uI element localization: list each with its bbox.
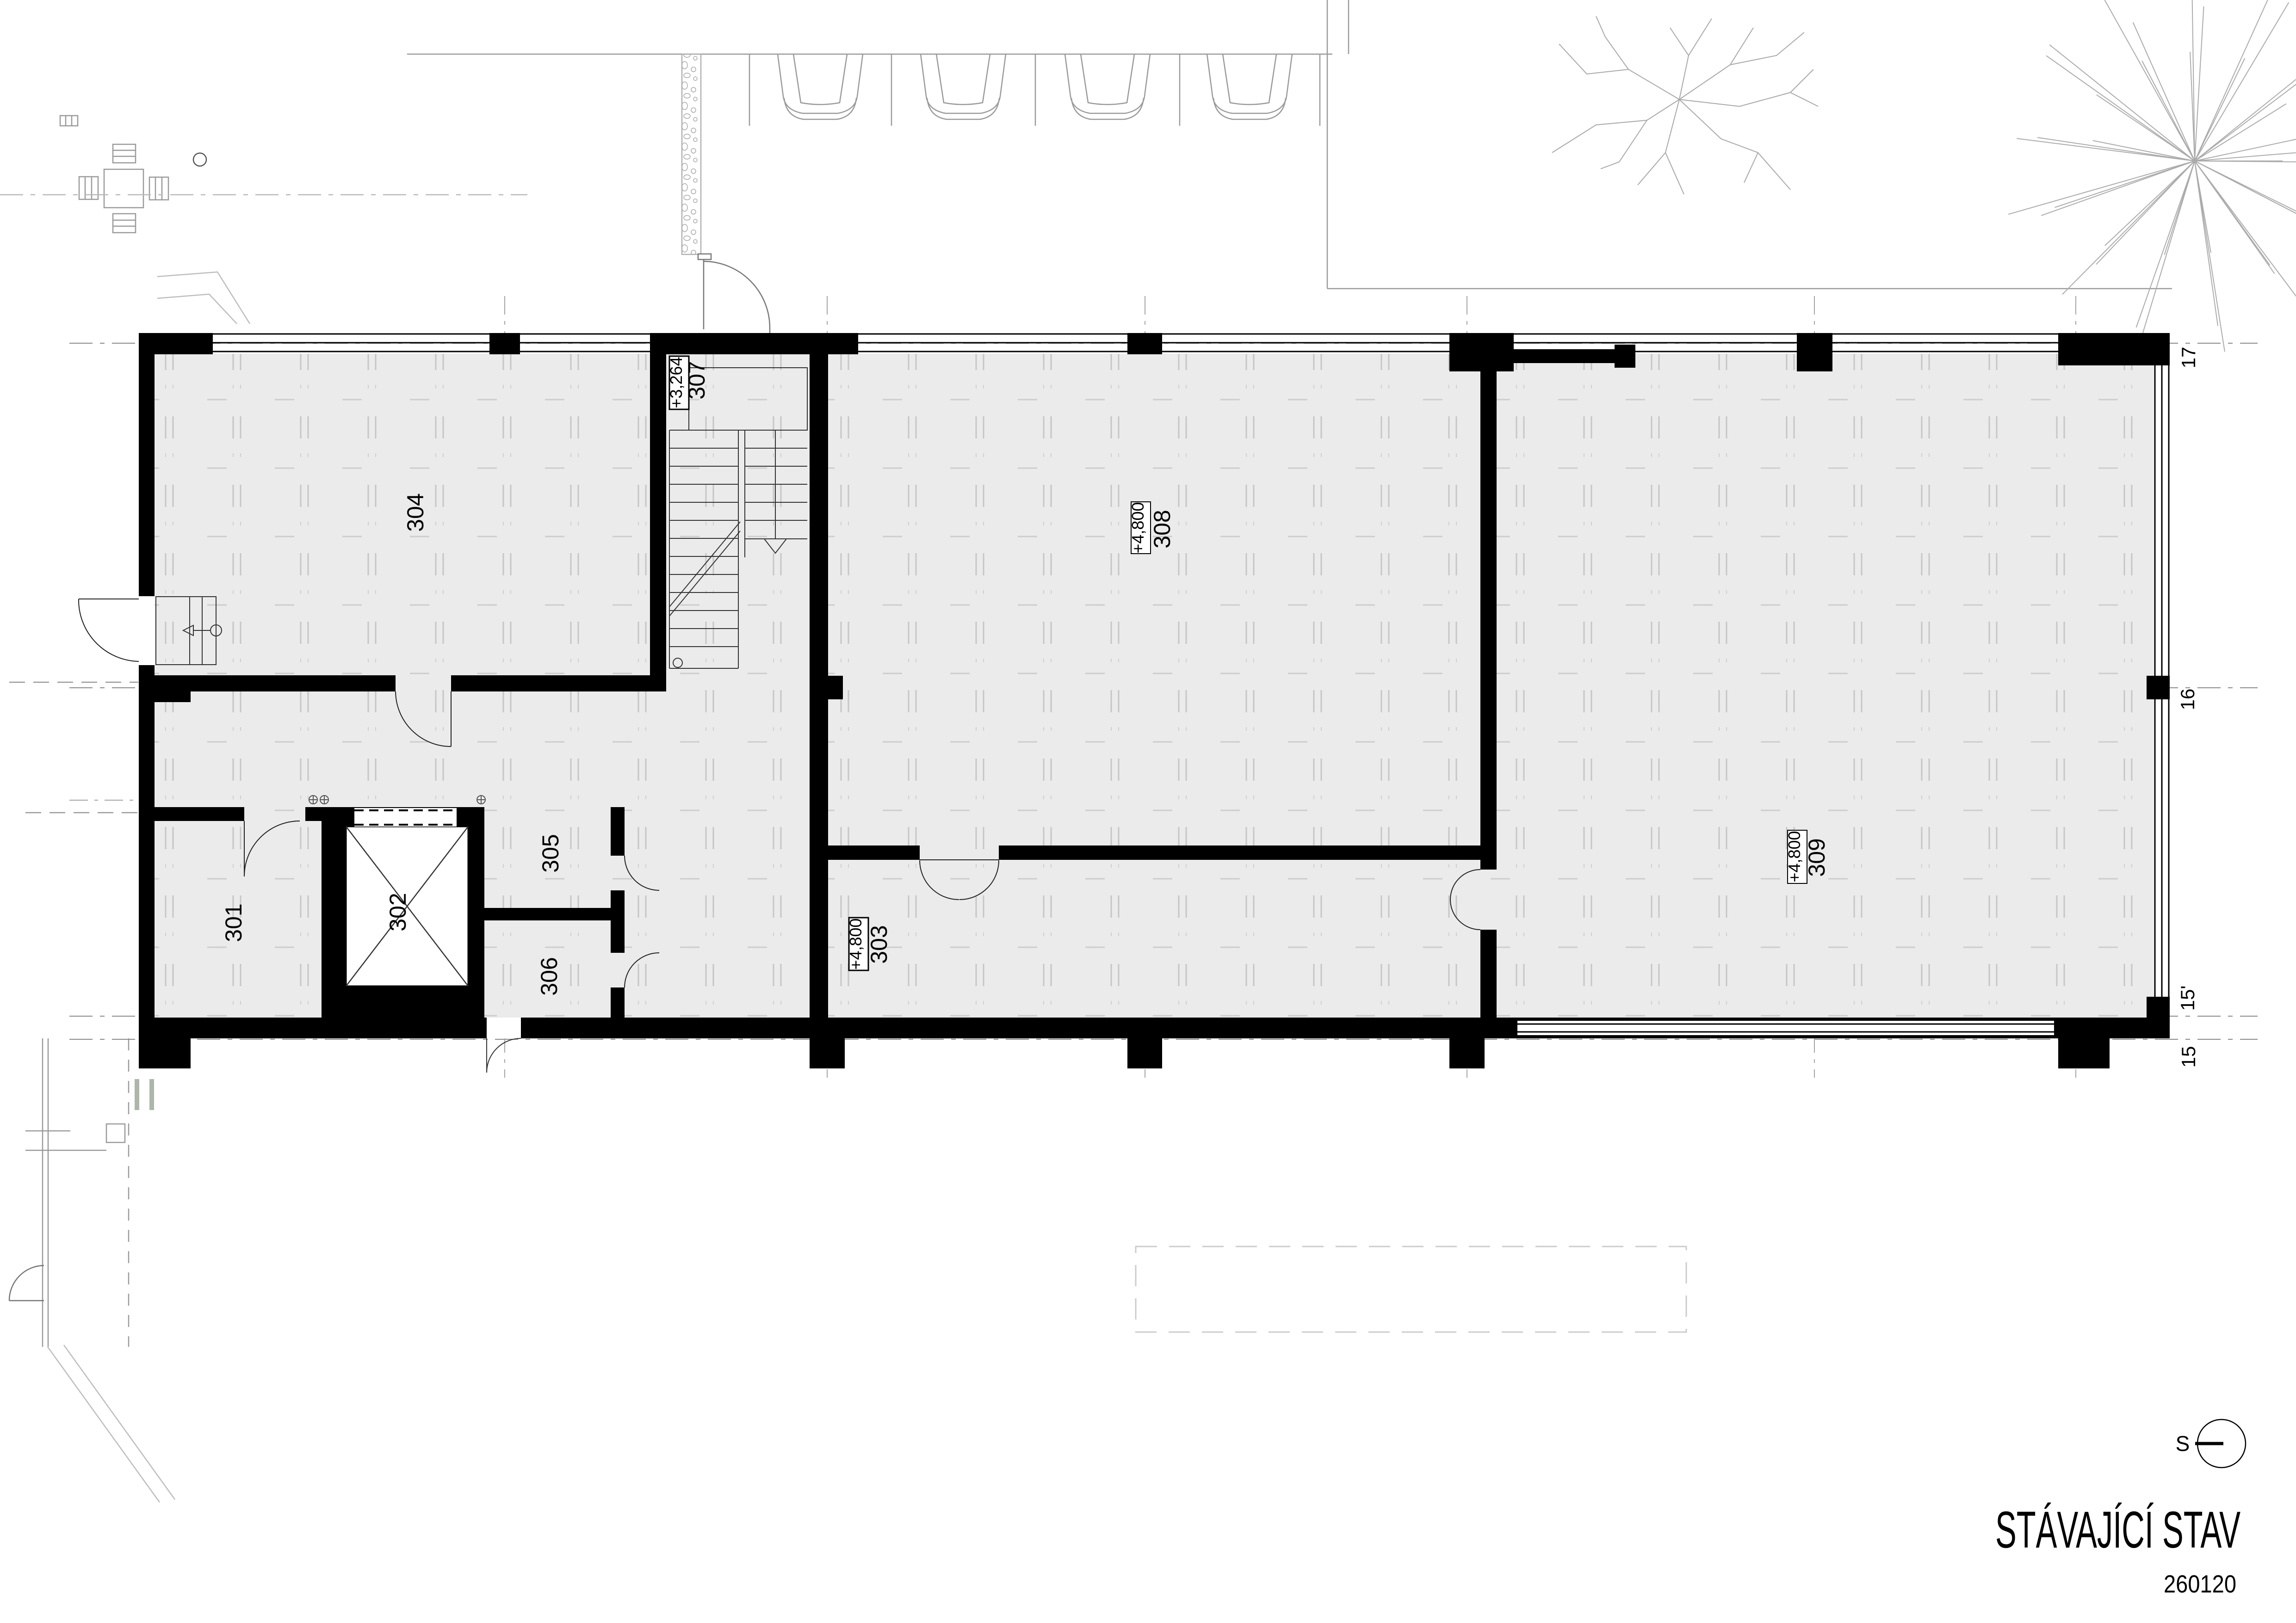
tree-ray	[2195, 161, 2270, 265]
tree-ray	[2142, 61, 2195, 161]
title-block: S STÁVAJÍCÍ STAV 260120	[1995, 1419, 2246, 1598]
tree-ray	[2195, 161, 2296, 220]
drawing-number: 260120	[2164, 1570, 2236, 1598]
tree-radial	[2008, 0, 2296, 352]
tree-ray	[2195, 63, 2296, 161]
garden-chair	[113, 214, 136, 233]
drawing-sheet: 301 302 303 304 305 306 307 308 309 +3,2…	[0, 0, 2296, 1623]
path-diagonal	[64, 1345, 175, 1500]
north-indicator: S	[2176, 1419, 2246, 1468]
svg-text:+4,800: +4,800	[1785, 831, 1804, 882]
room-label-302: 302	[385, 893, 411, 931]
svg-text:+3,264: +3,264	[667, 357, 686, 408]
garden-table-set	[60, 116, 206, 233]
room-label-304: 304	[402, 493, 428, 531]
grid-axis-label-15p: 15'	[2177, 986, 2198, 1011]
tree-ray	[2041, 161, 2195, 216]
door-gap-306-exterior	[487, 1018, 521, 1038]
path-diagonal	[48, 1347, 160, 1502]
garden-chair	[149, 177, 168, 200]
level-label-303: +4,800	[846, 918, 868, 970]
room-label-308: 308	[1149, 510, 1175, 548]
garden-chair	[113, 144, 136, 163]
garden-chair	[60, 116, 78, 126]
tree-ray	[2192, 0, 2195, 161]
floor-plan-drawing: 301 302 303 304 305 306 307 308 309 +3,2…	[0, 0, 2296, 1623]
grid-axis-label-15: 15	[2178, 1046, 2199, 1068]
path-edge	[157, 272, 250, 324]
car-outline	[1207, 54, 1292, 119]
planter-mark	[149, 1079, 154, 1110]
level-label-309: +4,800	[1785, 830, 1807, 883]
building	[79, 333, 2170, 1073]
window-band-bottom	[1517, 1021, 2054, 1035]
car-outline	[778, 54, 863, 119]
gate-door-swing	[698, 254, 770, 333]
door-swing-306-exterior	[487, 1038, 521, 1073]
tree-ray	[2037, 137, 2195, 161]
grid-axis-label-17: 17	[2178, 347, 2199, 369]
tree-ray	[2195, 2, 2289, 161]
tree-ray	[2049, 45, 2195, 161]
car-outline	[1065, 54, 1150, 119]
room-label-303: 303	[866, 925, 892, 963]
tree-ray	[2100, 0, 2195, 161]
tree-ray	[2195, 6, 2204, 161]
room-label-301: 301	[221, 903, 247, 942]
room-label-306: 306	[536, 957, 562, 995]
tree-ray	[2055, 161, 2195, 207]
tree-ray	[2195, 145, 2296, 161]
tree-ray	[2195, 161, 2296, 249]
car-outline	[921, 54, 1006, 119]
parking-area	[407, 54, 1332, 126]
tree-branched	[1552, 16, 1818, 194]
site-door-swing	[9, 1265, 44, 1301]
room-label-309: 309	[1804, 838, 1830, 876]
tree-ray	[2136, 161, 2195, 327]
dashed-site-outline	[1136, 1247, 1686, 1332]
gravel-strip	[682, 54, 701, 254]
svg-text:+4,800: +4,800	[846, 918, 865, 969]
planter-mark	[135, 1079, 139, 1110]
room-label-305: 305	[538, 834, 563, 872]
path-edge	[157, 294, 237, 324]
north-label: S	[2176, 1432, 2190, 1456]
site-lower-left	[9, 1038, 175, 1502]
site-circle-marker	[193, 153, 206, 166]
tree-ray	[2195, 161, 2296, 315]
level-label-307: +3,264	[667, 356, 689, 409]
level-label-308: +4,800	[1128, 502, 1151, 554]
tree-ray	[2195, 52, 2296, 161]
svg-text:+4,800: +4,800	[1128, 502, 1147, 553]
tree-ray	[2195, 161, 2225, 352]
grid-axis-label-16: 16	[2177, 689, 2198, 710]
door-swing-main-entrance	[79, 599, 139, 661]
tree-ray	[2195, 130, 2296, 161]
grid-axis-labels: 17 16 15' 15	[2177, 347, 2199, 1068]
drawing-title: STÁVAJÍCÍ STAV	[1995, 1501, 2240, 1559]
garden-chair	[79, 177, 98, 199]
garden-table	[104, 169, 143, 208]
